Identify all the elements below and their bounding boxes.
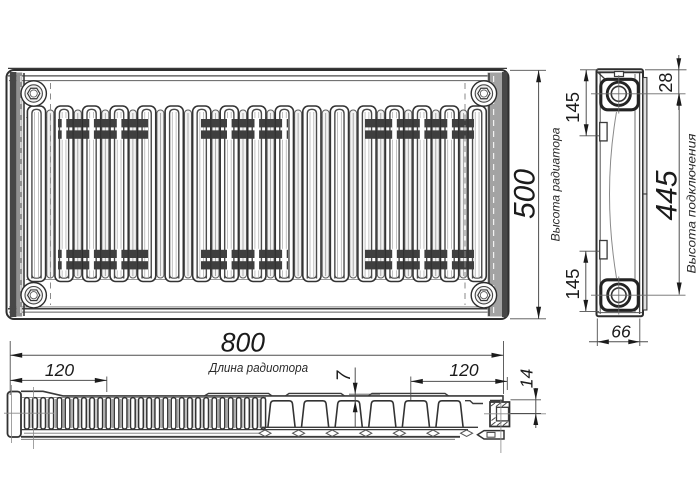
svg-text:Длина радиотора: Длина радиотора	[207, 361, 308, 375]
svg-text:66: 66	[611, 322, 631, 342]
svg-text:800: 800	[221, 328, 265, 358]
svg-text:28: 28	[656, 73, 676, 93]
svg-text:Высота радиатора: Высота радиатора	[549, 127, 563, 241]
svg-text:145: 145	[562, 269, 583, 300]
svg-text:120: 120	[45, 360, 74, 380]
svg-text:120: 120	[449, 360, 478, 380]
svg-text:14: 14	[517, 369, 537, 389]
svg-text:7: 7	[334, 369, 355, 381]
svg-text:Высота подключения: Высота подключения	[687, 134, 699, 274]
svg-text:500: 500	[509, 169, 542, 219]
svg-text:145: 145	[562, 92, 583, 123]
svg-text:445: 445	[651, 170, 684, 220]
